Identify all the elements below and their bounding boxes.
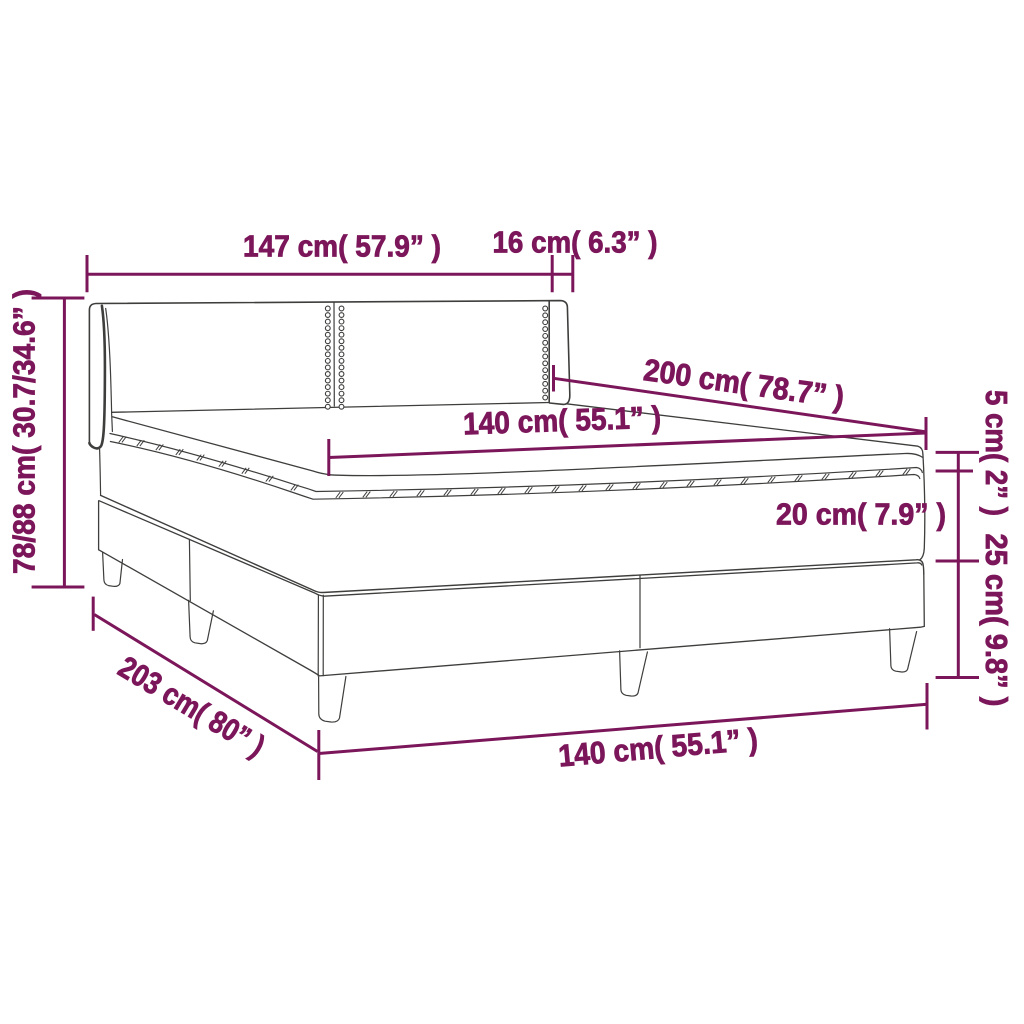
svg-text:140 cm( 55.1” ): 140 cm( 55.1” ) (557, 721, 759, 773)
svg-text:25 cm( 9.8” ): 25 cm( 9.8” ) (979, 534, 1014, 707)
svg-text:16 cm( 6.3” ): 16 cm( 6.3” ) (493, 225, 658, 260)
svg-text:5 cm( 2” ): 5 cm( 2” ) (979, 390, 1014, 516)
svg-text:203 cm( 80” ): 203 cm( 80” ) (112, 649, 271, 763)
svg-text:78/88 cm( 30.7/34.6” ): 78/88 cm( 30.7/34.6” ) (7, 289, 42, 574)
svg-text:20 cm( 7.9” ): 20 cm( 7.9” ) (776, 497, 946, 532)
svg-text:147 cm( 57.9” ): 147 cm( 57.9” ) (243, 229, 441, 264)
svg-text:140 cm( 55.1” ): 140 cm( 55.1” ) (462, 400, 661, 442)
